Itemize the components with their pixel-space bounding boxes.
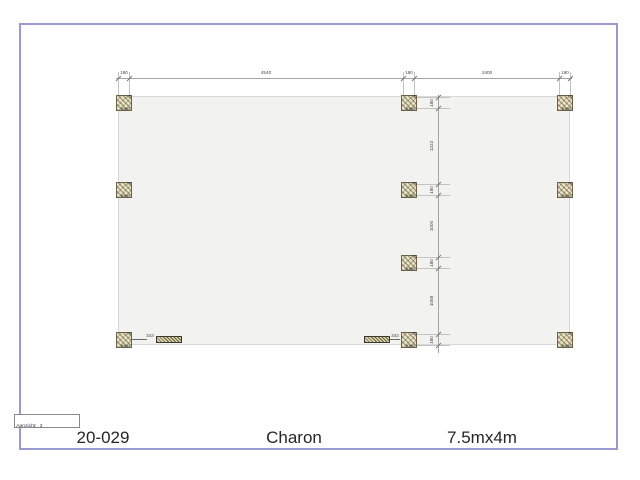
post-number: 24 <box>412 182 416 186</box>
post-symbol: 2390x90 <box>401 95 417 111</box>
post-size-label: 90x90 <box>405 344 412 348</box>
extension-line <box>559 72 560 95</box>
order-number: 20-029 <box>77 428 130 448</box>
model-name: Charon <box>266 428 322 448</box>
view-number-text: Aanzicht:2 <box>15 422 43 428</box>
dimension-value-vertical: 180 <box>430 186 435 194</box>
post-number: 26 <box>568 332 572 336</box>
post-symbol: 2490x90 <box>401 182 417 198</box>
extension-line <box>129 72 130 95</box>
post-symbol: 2390x90 <box>116 95 132 111</box>
post-size-label: 90x90 <box>120 107 127 111</box>
post-symbol: 2690x90 <box>557 332 573 348</box>
drawing-canvas: 1804540180240018018012221801000180105818… <box>0 0 640 480</box>
post-number: 26 <box>412 332 416 336</box>
dimension-line-horizontal <box>116 78 572 79</box>
dimension-line-vertical <box>438 95 439 353</box>
extension-line <box>412 268 450 269</box>
post-number: 24 <box>568 182 572 186</box>
post-size-label: 90x90 <box>561 107 568 111</box>
post-symbol: 2690x90 <box>116 332 132 348</box>
extension-line <box>570 72 571 95</box>
post-number: 23 <box>127 95 131 99</box>
post-symbol: 2590x90 <box>401 255 417 271</box>
post-symbol: 2490x90 <box>557 182 573 198</box>
extension-line <box>403 72 404 95</box>
extension-line <box>414 72 415 95</box>
post-number: 23 <box>568 95 572 99</box>
dimension-value-horizontal: 180 <box>120 71 128 76</box>
post-size-label: 90x90 <box>405 107 412 111</box>
extension-line <box>412 184 450 185</box>
post-size-label: 90x90 <box>405 267 412 271</box>
view-label: Aanzicht: <box>16 423 36 428</box>
post-number: 24 <box>127 182 131 186</box>
post-size-label: 90x90 <box>405 194 412 198</box>
dimension-value-vertical: 180 <box>430 336 435 344</box>
dimension-value-vertical: 1222 <box>430 141 435 151</box>
plan-outline <box>118 96 570 345</box>
post-number: 23 <box>412 95 416 99</box>
dimension-value-vertical: 180 <box>430 259 435 267</box>
dimension-value-vertical: 180 <box>430 99 435 107</box>
beam-block <box>364 336 390 343</box>
post-size-label: 90x90 <box>120 344 127 348</box>
post-size-label: 90x90 <box>561 344 568 348</box>
extension-line <box>412 334 450 335</box>
view-value: 2 <box>40 423 43 428</box>
post-size-label: 90x90 <box>561 194 568 198</box>
dimension-value-horizontal: 180 <box>405 71 413 76</box>
extension-line <box>412 257 450 258</box>
extension-line <box>412 97 450 98</box>
post-symbol: 2690x90 <box>401 332 417 348</box>
spacer-leader-line <box>390 339 400 340</box>
post-symbol: 2490x90 <box>116 182 132 198</box>
view-number-box: Aanzicht:2 <box>14 414 80 428</box>
dimension-value-vertical: 1058 <box>430 296 435 306</box>
beam-block <box>156 336 182 343</box>
post-symbol: 2390x90 <box>557 95 573 111</box>
dimension-value-horizontal: 4540 <box>261 71 271 76</box>
spacer-leader-line <box>132 339 147 340</box>
post-number: 26 <box>127 332 131 336</box>
extension-line <box>412 195 450 196</box>
post-number: 25 <box>412 255 416 259</box>
dimension-value-vertical: 1000 <box>430 221 435 231</box>
post-size-label: 90x90 <box>120 194 127 198</box>
extension-line <box>412 108 450 109</box>
extension-line <box>118 72 119 95</box>
dimension-value-horizontal: 180 <box>561 71 569 76</box>
spacer-dimension: 343 <box>391 334 399 339</box>
dimension-value-horizontal: 2400 <box>481 71 491 76</box>
spacer-dimension: 343 <box>146 334 154 339</box>
extension-line <box>412 345 450 346</box>
size-label: 7.5mx4m <box>447 428 517 448</box>
